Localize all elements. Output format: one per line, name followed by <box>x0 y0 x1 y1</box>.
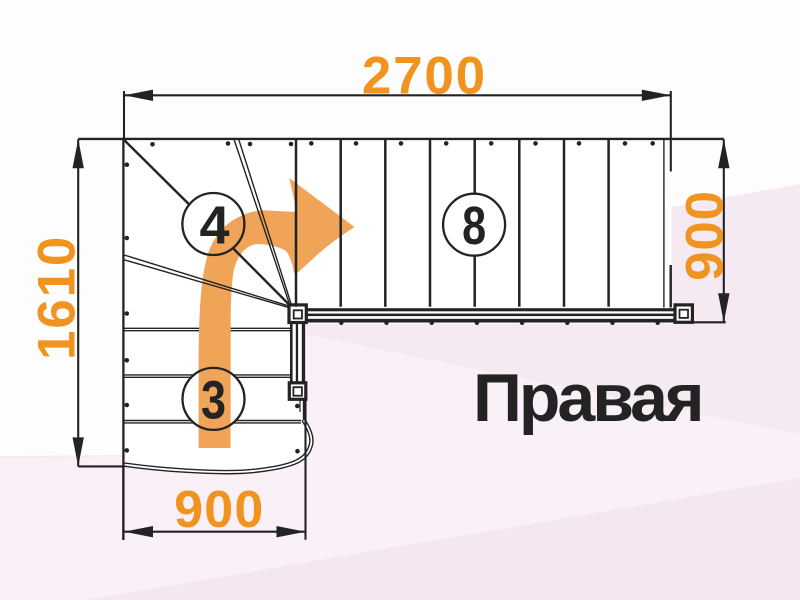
svg-text:900: 900 <box>676 190 735 281</box>
svg-text:4: 4 <box>199 196 229 256</box>
svg-text:1610: 1610 <box>28 235 87 360</box>
svg-text:900: 900 <box>174 481 264 539</box>
svg-text:8: 8 <box>462 196 486 256</box>
svg-text:3: 3 <box>201 370 226 430</box>
svg-text:Правая: Правая <box>473 360 702 436</box>
svg-text:2700: 2700 <box>362 47 487 106</box>
